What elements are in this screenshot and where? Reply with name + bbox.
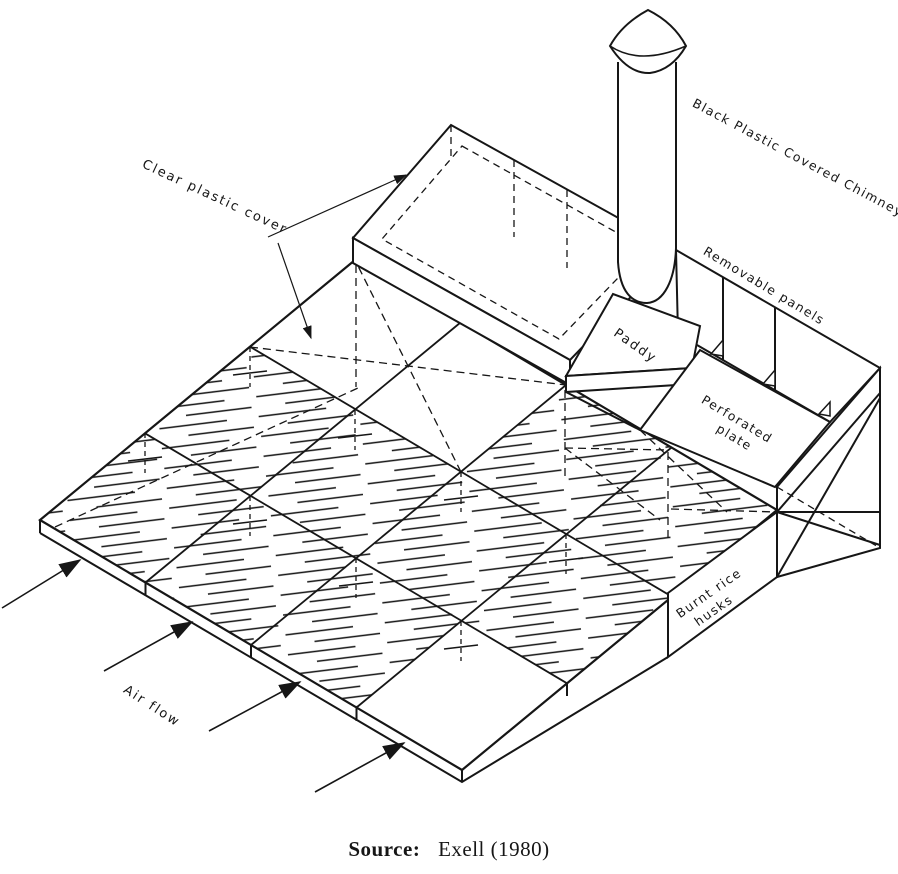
label-air-flow: Air flow: [120, 682, 182, 730]
source-caption-text: Exell (1980): [438, 837, 550, 861]
figure-page: Clear plastic cover Black Plastic Covere…: [0, 0, 898, 874]
chimney: [610, 10, 686, 303]
solar-rice-dryer-diagram: Clear plastic cover Black Plastic Covere…: [0, 0, 898, 874]
label-black-plastic-chimney: Black Plastic Covered Chimney: [690, 95, 898, 219]
label-clear-plastic-cover: Clear plastic cover: [140, 157, 290, 238]
source-caption: Source: Exell (1980): [348, 837, 549, 861]
source-caption-label: Source:: [348, 837, 420, 861]
chimney-cylinder: [618, 62, 676, 303]
